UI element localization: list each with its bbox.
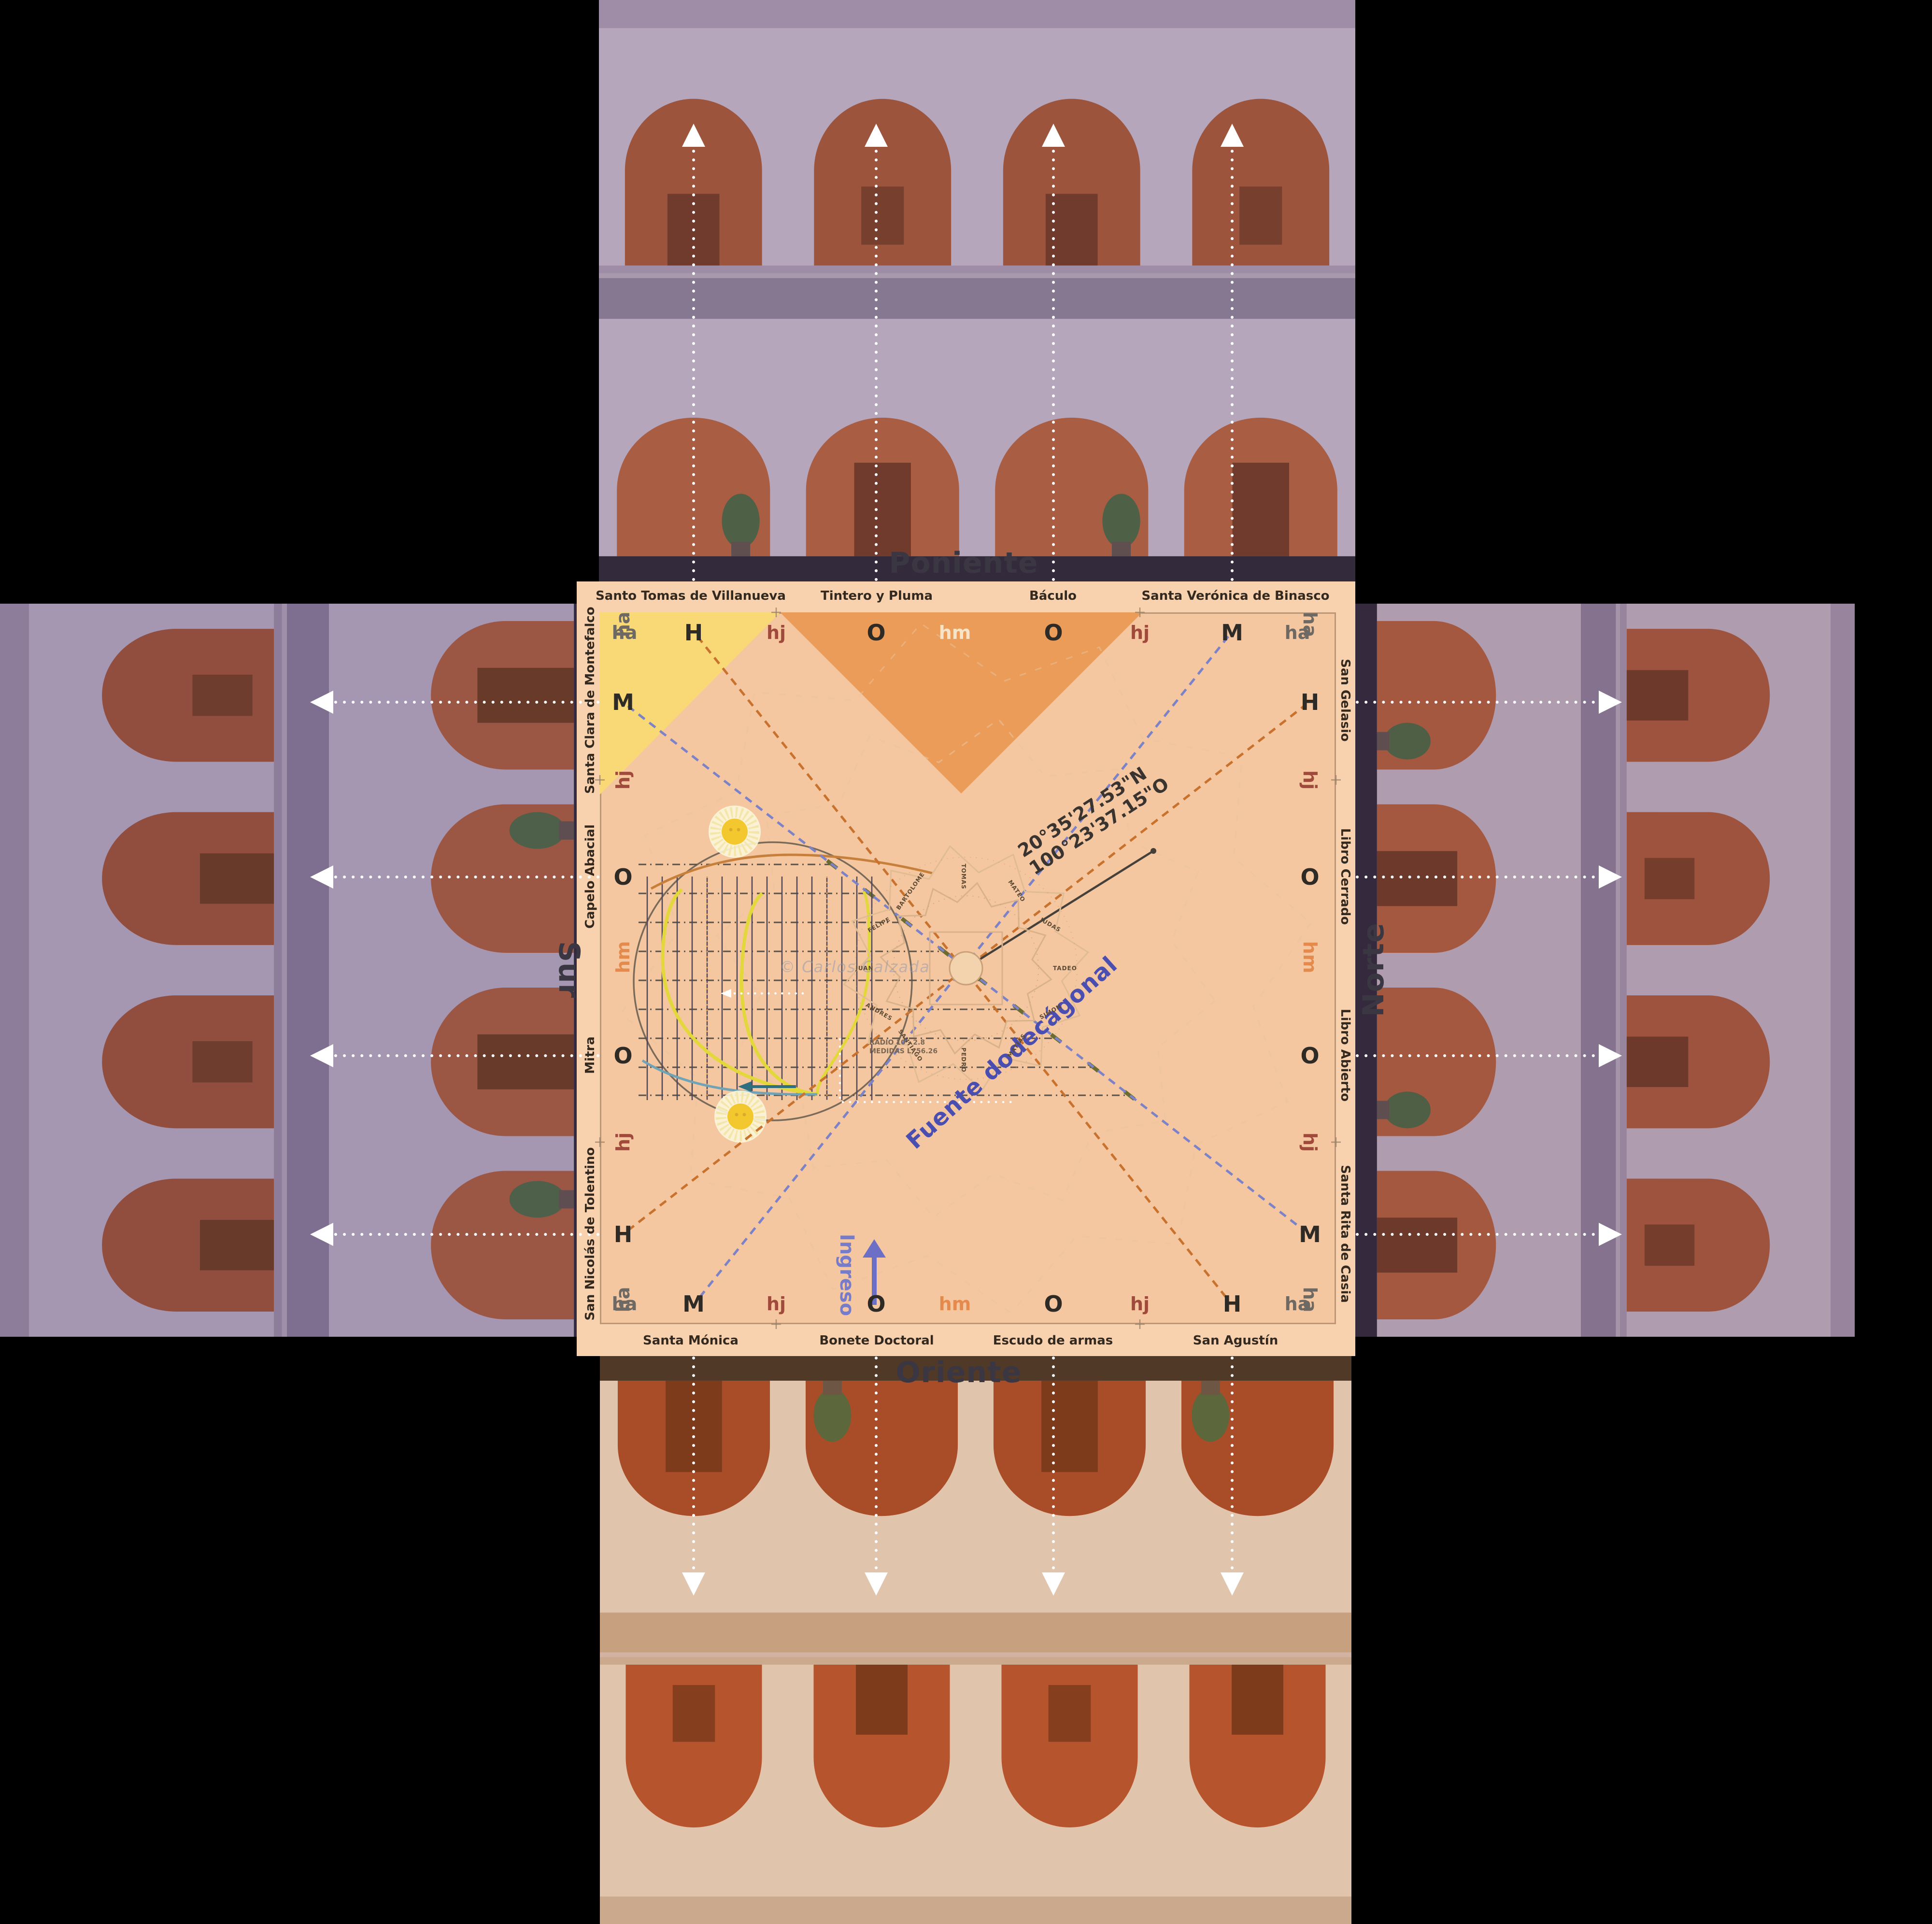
hour-letter-bottom-4: hm xyxy=(939,1293,971,1315)
hour-letter-top-5: O xyxy=(1044,620,1063,646)
hour-letter-right-1: H xyxy=(1301,689,1320,715)
panel-title-poniente: Poniente xyxy=(889,546,1038,580)
hour-letter-top-2: hj xyxy=(767,622,786,643)
hour-letter-right-4: hm xyxy=(1299,941,1321,974)
hour-letter-right-7: M xyxy=(1299,1221,1321,1247)
relief-label-right-1: Libro Cerrado xyxy=(1338,828,1352,925)
hour-letter-top-7: M xyxy=(1221,620,1243,646)
hour-letter-bottom-5: O xyxy=(1044,1291,1063,1317)
relief-label-top-3: Santa Verónica de Binasco xyxy=(1141,589,1329,603)
hour-letter-left-1: M xyxy=(612,689,634,715)
fine-print-line: MEDIDAS L, 56.26 xyxy=(869,1047,938,1056)
relief-label-left-3: San Nicolás de Tolentino xyxy=(583,1147,597,1321)
apostle-name-6: PEDRO xyxy=(960,1047,967,1072)
relief-label-top-2: Báculo xyxy=(1029,589,1077,603)
hour-letter-bottom-2: hj xyxy=(767,1293,786,1315)
hour-letter-bottom-7: H xyxy=(1223,1291,1242,1317)
relief-label-top-0: Santo Tomas de Villanueva xyxy=(596,589,786,603)
relief-label-right-3: Santa Rita de Casia xyxy=(1338,1165,1352,1303)
hour-letter-left-3: O xyxy=(613,864,632,890)
hour-letter-top-1: H xyxy=(684,620,703,646)
hour-letter-left-5: O xyxy=(613,1043,632,1069)
hour-letter-left-7: H xyxy=(614,1221,633,1247)
watermark: © Carlos Calzada xyxy=(780,958,930,976)
panel-title-sur: Sur xyxy=(552,941,586,999)
hour-letter-left-0: ha xyxy=(612,612,634,637)
relief-label-right-0: San Gelasio xyxy=(1338,659,1352,742)
hour-letter-bottom-6: hj xyxy=(1130,1293,1150,1315)
relief-label-bottom-1: Bonete Doctoral xyxy=(819,1333,934,1348)
hour-letter-left-8: ha xyxy=(612,1287,634,1313)
apostle-name-3: TADEO xyxy=(1053,965,1077,972)
hour-letter-right-2: hj xyxy=(1299,770,1321,790)
hour-letter-right-8: ha xyxy=(1299,1287,1321,1313)
hour-letter-right-0: ha xyxy=(1299,612,1321,637)
hour-letter-left-6: hj xyxy=(612,1132,634,1152)
hour-letter-bottom-3: O xyxy=(867,1291,885,1317)
hour-letter-right-3: O xyxy=(1300,864,1319,890)
hour-letter-right-5: O xyxy=(1300,1043,1319,1069)
entrance-label: Ingreso xyxy=(836,1234,858,1316)
relief-label-bottom-0: Santa Mónica xyxy=(643,1333,739,1348)
photo-sur xyxy=(0,604,600,1337)
hour-letter-left-2: hj xyxy=(612,770,634,790)
hour-letter-right-6: hj xyxy=(1299,1132,1321,1152)
hour-letter-bottom-1: M xyxy=(682,1291,705,1317)
cloister-foldout-diagram: Poniente Oriente Sur Norte 20°35'27.53"N… xyxy=(0,0,1932,1924)
relief-label-left-2: Mitra xyxy=(583,1036,597,1074)
relief-label-right-2: Libro Abierto xyxy=(1338,1009,1352,1102)
hour-letter-left-4: hm xyxy=(612,941,634,974)
hour-letter-top-6: hj xyxy=(1130,622,1150,643)
apostle-name-0: TOMAS xyxy=(960,863,967,889)
hour-letter-top-4: hm xyxy=(939,622,971,643)
photo-oriente xyxy=(600,1356,1351,1924)
panel-title-oriente: Oriente xyxy=(896,1356,1022,1389)
plan-inner-border xyxy=(600,612,1336,1324)
relief-label-left-0: Santa Clara de Montefalco xyxy=(583,607,597,793)
panel-title-norte: Norte xyxy=(1357,922,1391,1017)
hour-letter-top-3: O xyxy=(867,620,885,646)
apostle-name-9: JUAN xyxy=(855,965,873,972)
photo-poniente xyxy=(599,0,1355,581)
photo-norte xyxy=(1355,604,1855,1337)
relief-label-bottom-2: Escudo de armas xyxy=(993,1333,1113,1348)
relief-label-bottom-3: San Agustín xyxy=(1193,1333,1278,1348)
relief-label-left-1: Capelo Abacial xyxy=(583,824,597,929)
relief-label-top-1: Tintero y Pluma xyxy=(821,589,933,603)
